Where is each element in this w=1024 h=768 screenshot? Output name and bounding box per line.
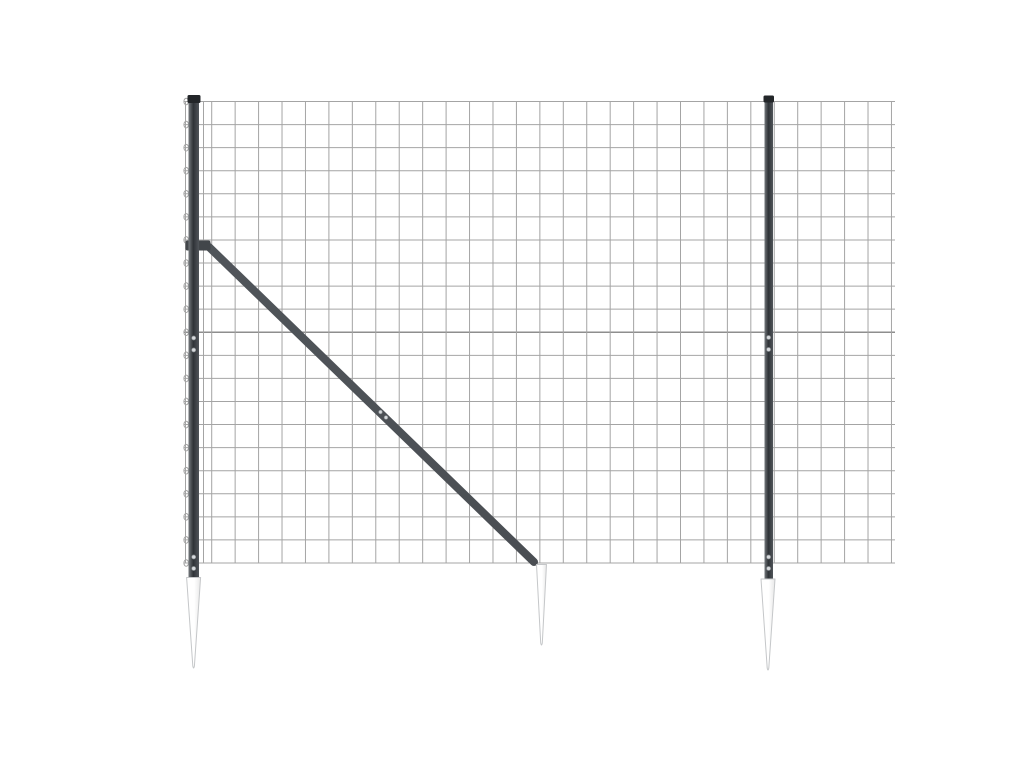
post-bolt: [767, 336, 771, 340]
fence-post-left: [188, 95, 201, 578]
post-bolt: [192, 567, 196, 571]
post-cap: [188, 95, 201, 103]
ground-spike-left: [187, 578, 201, 669]
post-bolt: [767, 567, 771, 571]
post-bolt: [192, 555, 196, 559]
post-bolt: [767, 555, 771, 559]
post-bolt: [192, 336, 196, 340]
post-bolt: [192, 348, 196, 352]
fence-illustration: [0, 0, 1024, 768]
brace-bolt: [384, 416, 388, 420]
ground-spike-middle: [537, 565, 547, 646]
brace-bolt: [379, 410, 383, 414]
post-cap: [764, 96, 775, 103]
wire-mesh-group: [184, 102, 895, 564]
brace-bar: [209, 247, 534, 562]
post-body: [765, 101, 774, 580]
ground-spikes-group: [187, 565, 775, 671]
post-bolt: [767, 348, 771, 352]
ground-spike-right: [761, 579, 775, 670]
product-image: [0, 0, 1024, 768]
fence-post-right: [764, 96, 775, 581]
